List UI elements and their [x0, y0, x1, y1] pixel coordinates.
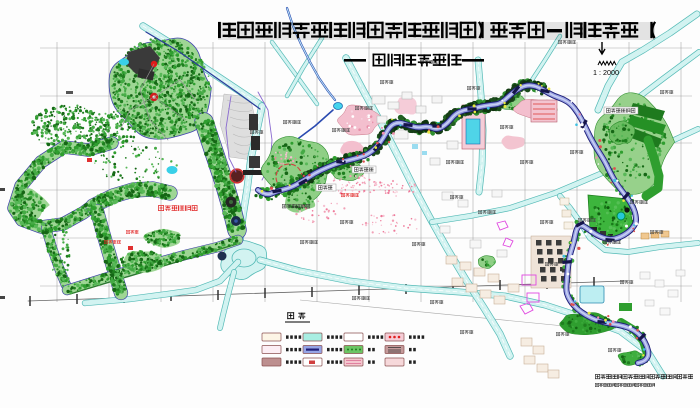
svg-text:1 : 2000: 1 : 2000	[593, 68, 619, 77]
